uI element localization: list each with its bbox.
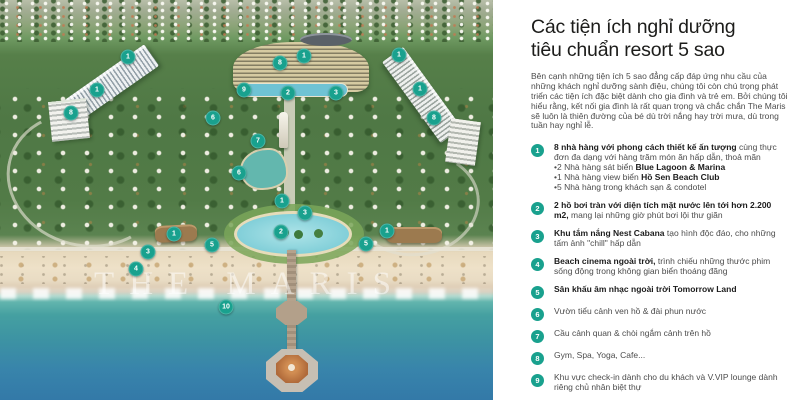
- amenity-item: 5Sân khấu âm nhạc ngoài trời Tomorrow La…: [531, 285, 786, 299]
- title-line-2: tiêu chuẩn resort 5 sao: [531, 39, 786, 62]
- amenity-text: Khu vực check-in dành cho du khách và V.…: [554, 372, 778, 392]
- item-number-badge: 4: [531, 258, 544, 271]
- map-marker-2: 2: [274, 225, 289, 240]
- map-marker-10: 10: [219, 300, 234, 315]
- map-marker-1: 1: [392, 48, 407, 63]
- map-marker-1: 1: [275, 194, 290, 209]
- map-marker-5: 5: [205, 238, 220, 253]
- item-number-badge: 8: [531, 352, 544, 365]
- amenity-text-bold: Hồ Sen Beach Club: [641, 172, 719, 182]
- amenity-item: 9Khu vực check-in dành cho du khách và V…: [531, 373, 786, 393]
- amenity-text: Vườn tiểu cảnh ven hồ & đài phun nước: [554, 306, 706, 316]
- map-marker-1: 1: [297, 49, 312, 64]
- item-number-badge: 1: [531, 144, 544, 157]
- item-number-badge: 5: [531, 286, 544, 299]
- hotel-roof-deck: [300, 33, 352, 46]
- map-marker-8: 8: [427, 111, 442, 126]
- amenity-item: 22 hồ bơi tràn với diện tích mặt nước lê…: [531, 201, 786, 221]
- map-marker-1: 1: [380, 224, 395, 239]
- amenity-item-text: Vườn tiểu cảnh ven hồ & đài phun nước: [554, 307, 786, 321]
- amenity-item-text: Beach cinema ngoài trời, trình chiếu nhữ…: [554, 257, 786, 277]
- map-marker-8: 8: [64, 106, 79, 121]
- map-marker-6: 6: [232, 166, 247, 181]
- the-maris-watermark: THE MARIS: [30, 266, 470, 303]
- amenity-text: •1 Nhà hàng view biển: [554, 172, 641, 182]
- distant-town-texture: [0, 0, 493, 42]
- map-marker-1: 1: [90, 83, 105, 98]
- map-marker-4: 4: [129, 262, 144, 277]
- lotus-lake: [240, 148, 288, 190]
- amenity-item-text: Sân khấu âm nhạc ngoài trời Tomorrow Lan…: [554, 285, 786, 299]
- amenity-list: 18 nhà hàng với phong cách thiết kế ấn t…: [531, 143, 786, 400]
- amenity-sub-line: •5 Nhà hàng trong khách sạn & condotel: [554, 183, 786, 193]
- page-title: Các tiện ích nghỉ dưỡng tiêu chuẩn resor…: [531, 16, 786, 63]
- map-marker-1: 1: [121, 50, 136, 65]
- item-number-badge: 7: [531, 330, 544, 343]
- map-marker-1: 1: [413, 82, 428, 97]
- amenity-item-text: 2 hồ bơi tràn với diện tích mặt nước lên…: [554, 201, 786, 221]
- amenity-text: mang lại những giờ phút bơi lội thư giãn: [569, 210, 723, 220]
- item-number-badge: 6: [531, 308, 544, 321]
- amenity-item-text: Khu tắm nắng Nest Cabana tạo hình độc đá…: [554, 229, 786, 249]
- amenity-item: 6Vườn tiểu cảnh ven hồ & đài phun nước: [531, 307, 786, 321]
- amenity-text-bold: Khu tắm nắng Nest Cabana: [554, 228, 665, 238]
- resort-aerial-photo: THE MARIS 1811192318687613211553410: [0, 0, 493, 400]
- amenity-text: •5 Nhà hàng trong khách sạn & condotel: [554, 182, 706, 192]
- map-marker-1: 1: [167, 227, 182, 242]
- amenity-item: 8Gym, Spa, Yoga, Cafe...: [531, 351, 786, 365]
- amenity-item-text: Cầu cảnh quan & chòi ngắm cảnh trên hồ: [554, 329, 786, 343]
- amenity-text-bold: Blue Lagoon & Marina: [635, 162, 725, 172]
- amenity-item: 4Beach cinema ngoài trời, trình chiếu nh…: [531, 257, 786, 277]
- amenity-item: 18 nhà hàng với phong cách thiết kế ấn t…: [531, 143, 786, 193]
- amenity-item-text: Khu vực check-in dành cho du khách và V.…: [554, 373, 786, 393]
- fountain-sculpture: [279, 112, 288, 148]
- amenity-text-bold: 8 nhà hàng với phong cách thiết kế ấn tư…: [554, 142, 737, 152]
- amenity-text: Cầu cảnh quan & chòi ngắm cảnh trên hồ: [554, 328, 711, 338]
- map-marker-8: 8: [273, 56, 288, 71]
- map-marker-5: 5: [359, 237, 374, 252]
- map-marker-2: 2: [281, 86, 296, 101]
- amenity-text: •2 Nhà hàng sát biển: [554, 162, 635, 172]
- item-number-badge: 3: [531, 230, 544, 243]
- intro-paragraph: Bên cạnh những tiện ích 5 sao đẳng cấp đ…: [531, 72, 791, 132]
- map-marker-9: 9: [237, 83, 252, 98]
- item-number-badge: 2: [531, 202, 544, 215]
- pier-mid-platform: [276, 301, 307, 325]
- item-number-badge: 9: [531, 374, 544, 387]
- amenity-text: Gym, Spa, Yoga, Cafe...: [554, 350, 645, 360]
- marketing-slide: THE MARIS 1811192318687613211553410 Các …: [0, 0, 800, 400]
- amenity-item-text: Gym, Spa, Yoga, Cafe...: [554, 351, 786, 365]
- amenity-item: 7Cầu cảnh quan & chòi ngắm cảnh trên hồ: [531, 329, 786, 343]
- pier-pavilion-tip: [288, 364, 295, 371]
- amenity-text-bold: Beach cinema ngoài trời,: [554, 256, 655, 266]
- map-marker-3: 3: [329, 86, 344, 101]
- amenity-text-bold: Sân khấu âm nhạc ngoài trời Tomorrow Lan…: [554, 284, 737, 294]
- low-rise-block-right: [445, 118, 481, 166]
- title-line-1: Các tiện ích nghỉ dưỡng: [531, 16, 786, 39]
- amenities-panel: Các tiện ích nghỉ dưỡng tiêu chuẩn resor…: [493, 0, 800, 400]
- map-marker-3: 3: [141, 245, 156, 260]
- map-marker-3: 3: [298, 206, 313, 221]
- map-marker-7: 7: [251, 134, 266, 149]
- amenity-item-text: 8 nhà hàng với phong cách thiết kế ấn tư…: [554, 143, 786, 193]
- map-marker-6: 6: [206, 111, 221, 126]
- amenity-item: 3Khu tắm nắng Nest Cabana tạo hình độc đ…: [531, 229, 786, 249]
